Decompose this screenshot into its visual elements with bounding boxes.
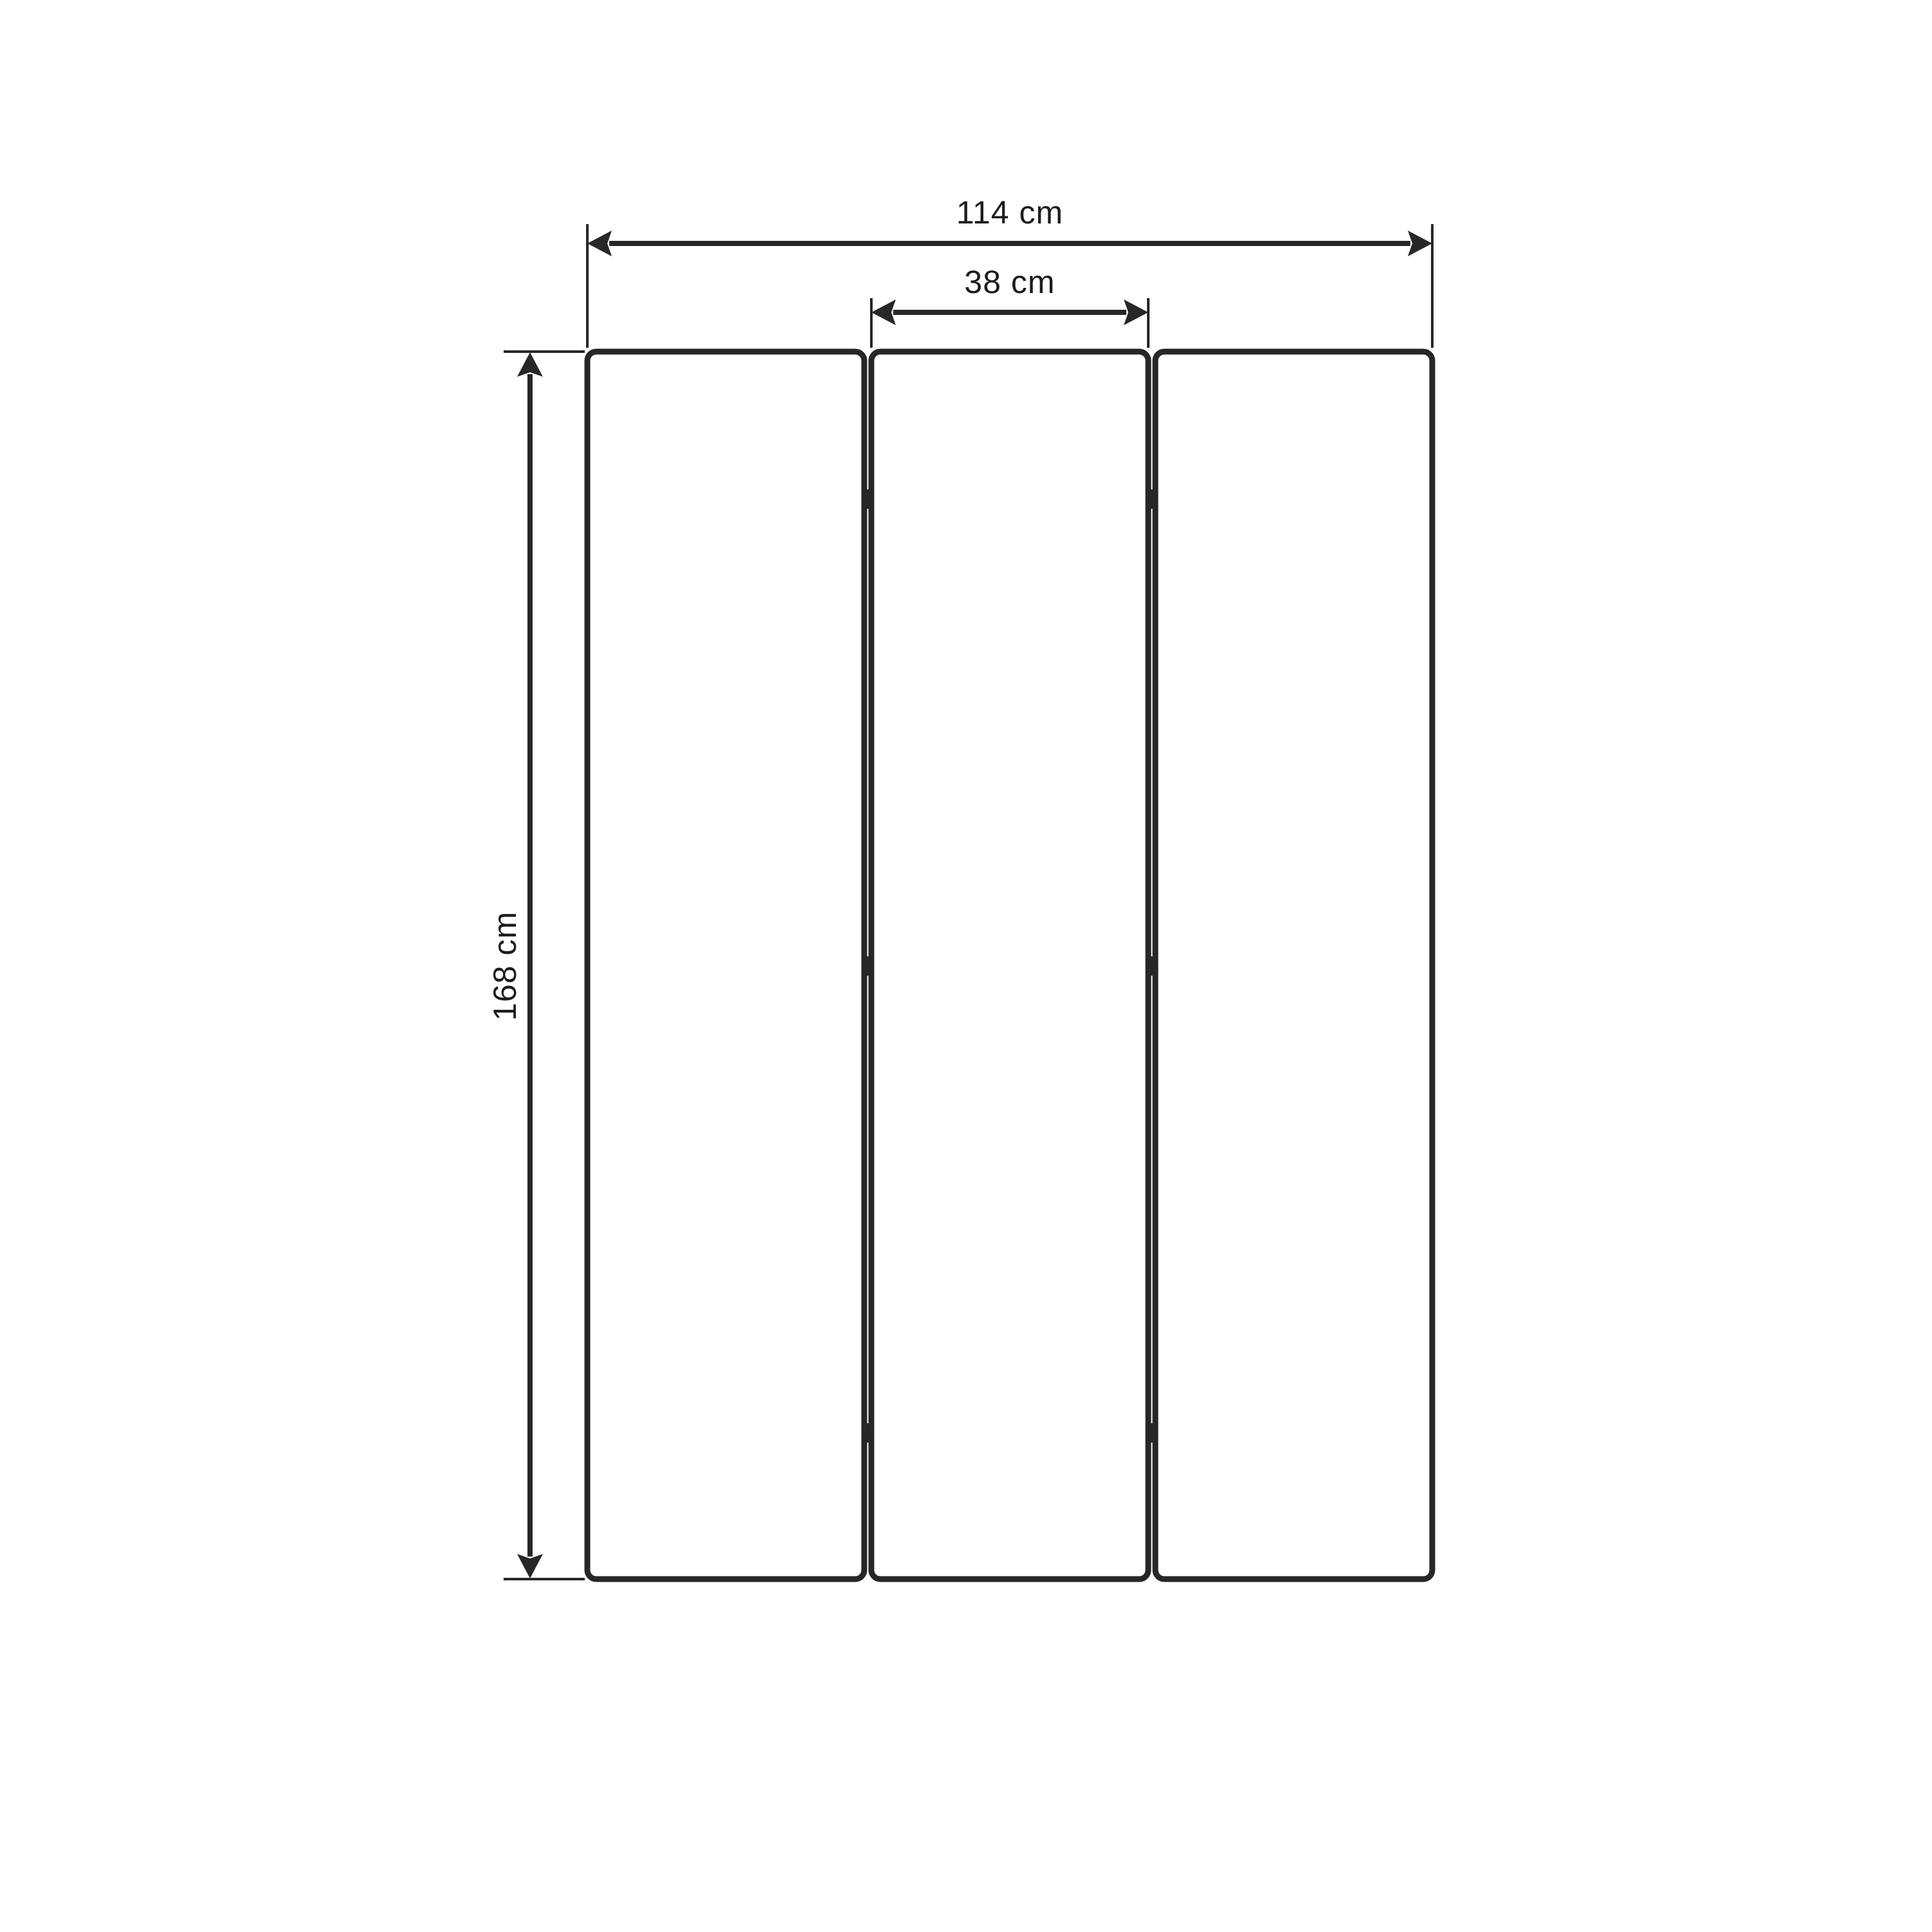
panel-right [1155, 352, 1432, 1579]
arrowhead-bottom-icon [517, 1554, 543, 1578]
diagram-canvas: 114 cm 38 cm 168 cm [0, 0, 1932, 1932]
hinge-left-bottom [863, 1423, 873, 1443]
dimension-panel-width: 38 cm [871, 264, 1148, 348]
dimension-label-panel-width: 38 cm [964, 264, 1055, 300]
hinge-right-middle [1147, 956, 1157, 976]
arrowhead-right-icon [1408, 231, 1432, 256]
dimension-height: 168 cm [487, 352, 585, 1579]
hinge-right-bottom [1147, 1423, 1157, 1443]
arrowhead-top-icon [517, 352, 543, 377]
dimension-label-total-width: 114 cm [956, 194, 1063, 231]
panel-middle [871, 352, 1148, 1579]
panels-group [587, 352, 1432, 1579]
hinge-left-middle [863, 956, 873, 976]
panel-left [587, 352, 864, 1579]
arrowhead-left-icon [587, 231, 612, 256]
arrowhead-left-icon [871, 299, 896, 325]
arrowhead-right-icon [1124, 299, 1148, 325]
folding-screen-dimension-diagram: 114 cm 38 cm 168 cm [0, 0, 1932, 1932]
hinge-left-top [863, 489, 873, 509]
dimension-label-height: 168 cm [487, 911, 523, 1021]
hinge-right-top [1147, 489, 1157, 509]
